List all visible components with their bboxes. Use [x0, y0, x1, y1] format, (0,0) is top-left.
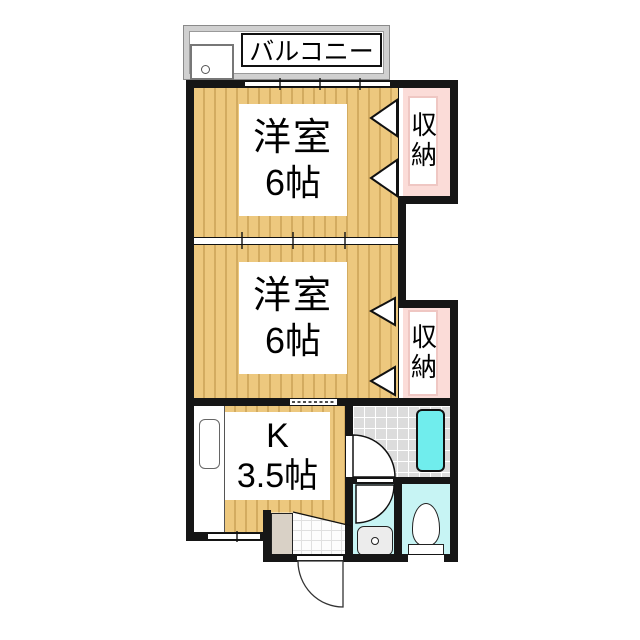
- western-room-2-label: 洋室 6帖: [239, 262, 347, 374]
- wall-washroom-toilet: [394, 484, 402, 554]
- western-room-2-name: 洋室: [253, 273, 333, 319]
- floor-plan: バルコニー 収納 収納 洋室: [0, 0, 640, 640]
- closet-1-label-box: 収納: [408, 96, 438, 186]
- opening-room2-kitchen: [290, 399, 337, 405]
- washer-drain-icon: [201, 65, 210, 74]
- closet-1-label: 収納: [405, 111, 442, 171]
- room-partition: [194, 237, 398, 245]
- wall-closet1-bottom: [398, 196, 458, 204]
- wall-right-middle: [398, 196, 406, 308]
- washbasin-drain-icon: [371, 537, 379, 545]
- western-room-1-name: 洋室: [253, 115, 333, 161]
- balcony-label-box: バルコニー: [241, 33, 382, 67]
- opening-bath-door: [346, 436, 353, 477]
- closet-2-label-box: 収納: [408, 310, 438, 396]
- wall-left: [186, 80, 194, 541]
- western-room-1-label: 洋室 6帖: [239, 104, 347, 216]
- balcony-label: バルコニー: [249, 32, 374, 68]
- window-toilet: [408, 555, 444, 562]
- opening-bath-washroom: [357, 478, 393, 483]
- kitchen-size: 3.5帖: [237, 456, 318, 496]
- door-swing-icon: [298, 561, 343, 607]
- western-room-2-size: 6帖: [265, 319, 321, 363]
- closet-2-label: 収納: [405, 323, 442, 383]
- kitchen-name: K: [266, 416, 289, 456]
- western-room-1-size: 6帖: [265, 161, 321, 205]
- kitchen-label: K 3.5帖: [225, 412, 330, 500]
- wall-closet2-top: [398, 300, 458, 308]
- kitchen-sink-unit: [199, 419, 220, 469]
- toilet-bowl: [412, 503, 440, 546]
- window-balcony: [245, 81, 390, 87]
- opening-entrance-door: [297, 555, 343, 561]
- window-kitchen: [208, 533, 260, 540]
- washing-machine-pad: [190, 44, 234, 80]
- shoe-cabinet: [271, 513, 293, 560]
- wall-right-upper: [450, 80, 458, 204]
- bathtub: [416, 409, 445, 472]
- wall-right-lower: [450, 300, 458, 562]
